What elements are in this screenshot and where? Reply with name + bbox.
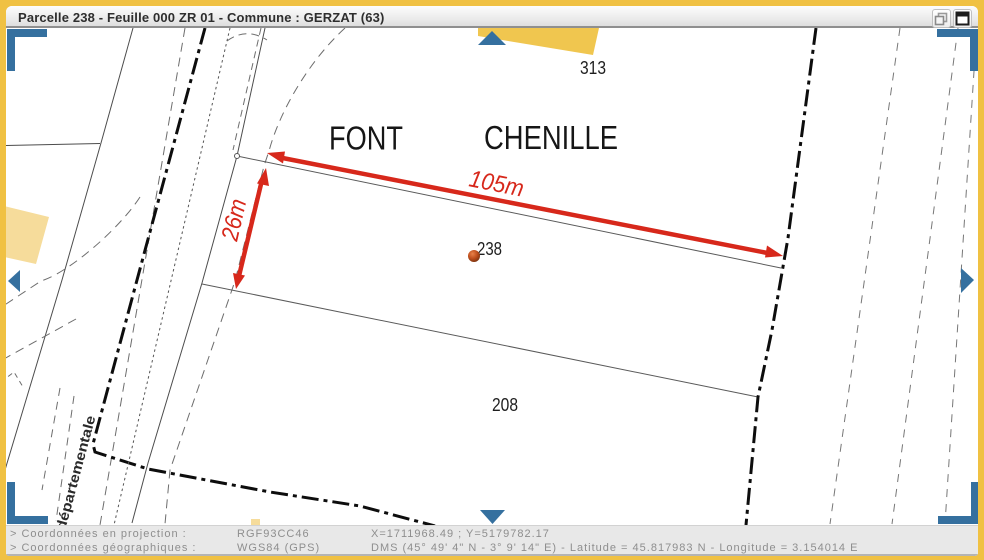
svg-text:CHENILLE: CHENILLE [484,119,618,156]
svg-text:313: 313 [580,58,606,78]
svg-text:238: 238 [477,239,502,259]
svg-text:départementale: départementale [52,413,98,525]
svg-text:208: 208 [492,395,518,415]
svg-text:FONT: FONT [329,120,403,157]
